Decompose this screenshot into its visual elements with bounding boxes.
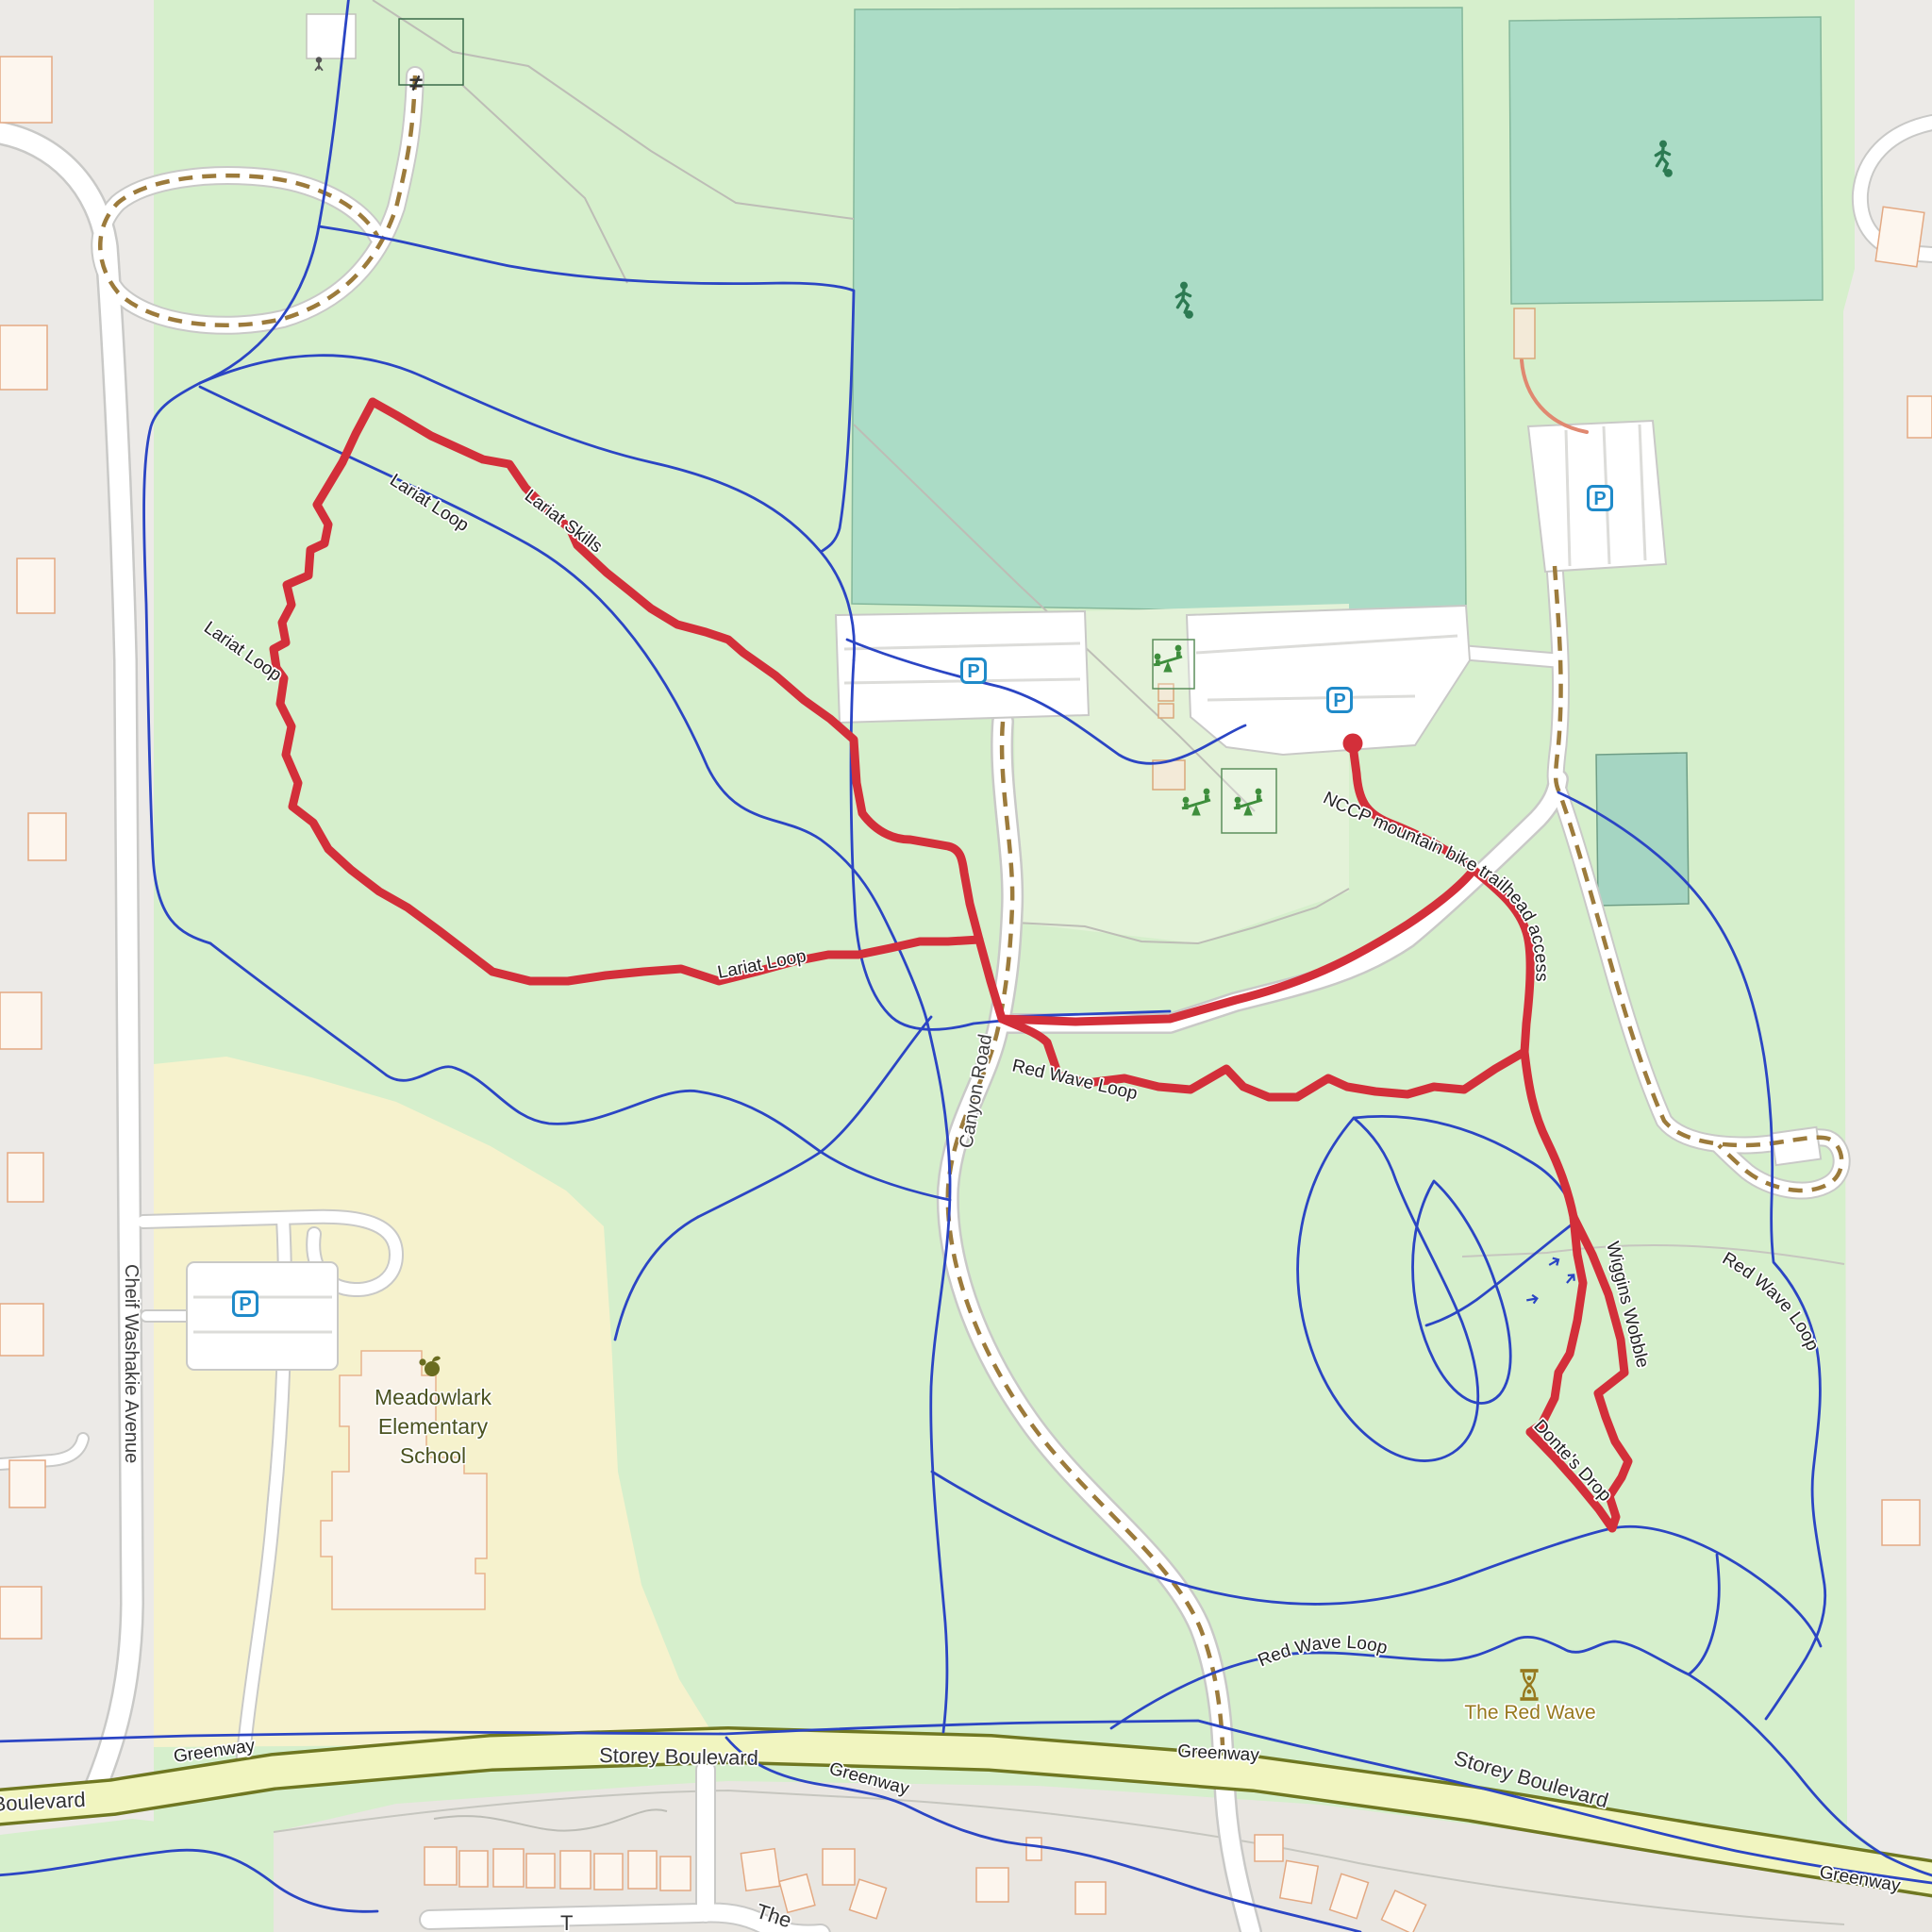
- residential-east: [1843, 0, 1932, 1891]
- parking-trailhead-icon: [1328, 689, 1352, 712]
- poi-label: The Red Wave: [1464, 1702, 1595, 1724]
- road-label: Cheif Washakie Avenue: [121, 1264, 142, 1463]
- route-start-marker: [1343, 734, 1363, 754]
- parking-northeast-icon: [1589, 487, 1612, 510]
- sports-field-main: [852, 8, 1466, 615]
- map-canvas[interactable]: P: [0, 0, 1932, 1932]
- road-label: Storey Boulevard: [599, 1743, 758, 1770]
- school-label: Elementary: [378, 1414, 489, 1439]
- school-label: Meadowlark: [375, 1385, 491, 1409]
- parking-school-icon: [234, 1292, 258, 1316]
- parking-west-icon: [962, 659, 986, 683]
- trail-map[interactable]: P: [0, 0, 1932, 1932]
- school-label: School: [400, 1443, 466, 1468]
- road-label: Boulevard: [0, 1788, 86, 1816]
- sports-field-small: [1596, 753, 1689, 906]
- road-label: T: [560, 1911, 573, 1932]
- park-south-corner: [0, 1819, 274, 1932]
